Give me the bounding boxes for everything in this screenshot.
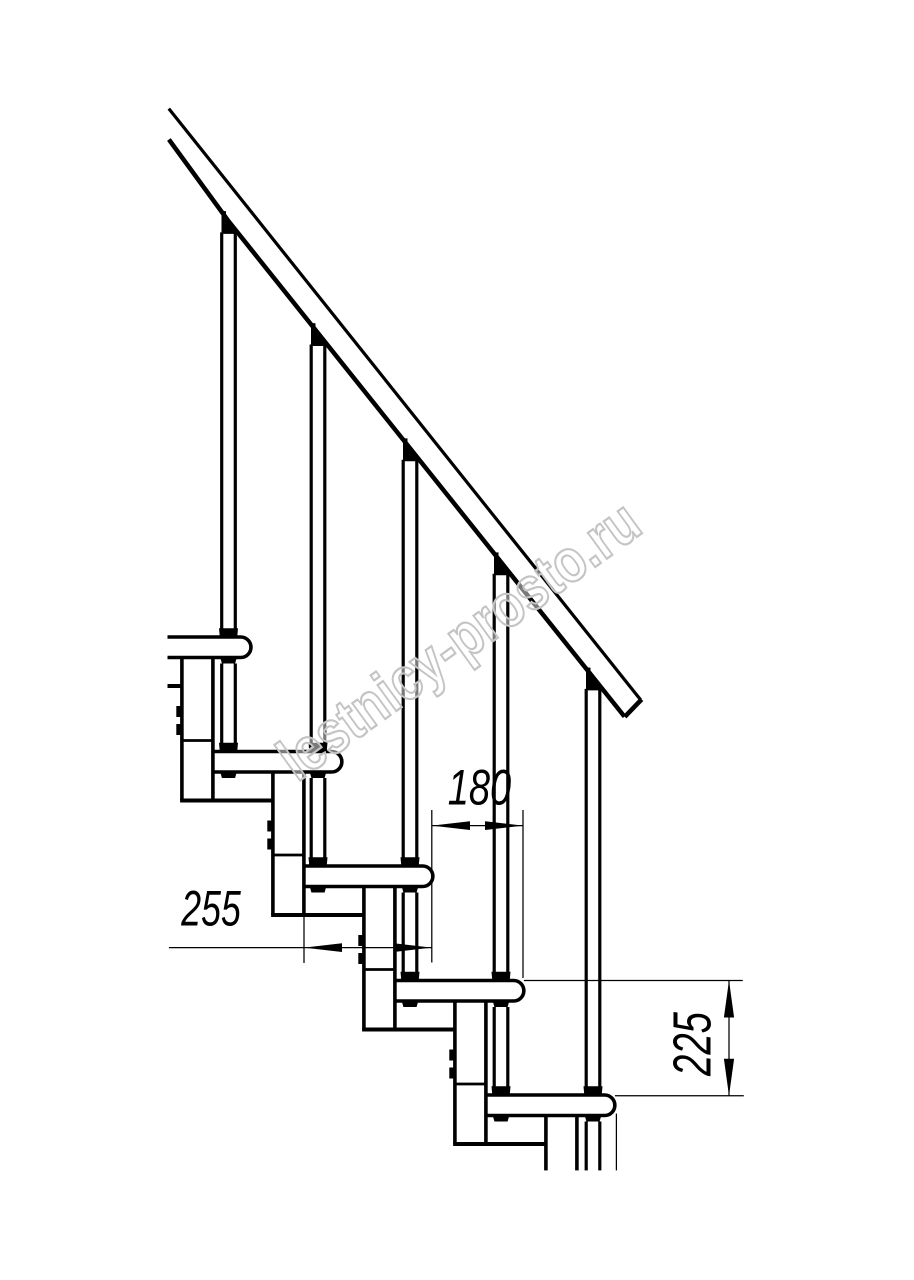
svg-text:180: 180 (448, 759, 512, 816)
svg-text:255: 255 (181, 880, 242, 937)
svg-text:225: 225 (663, 1011, 723, 1076)
